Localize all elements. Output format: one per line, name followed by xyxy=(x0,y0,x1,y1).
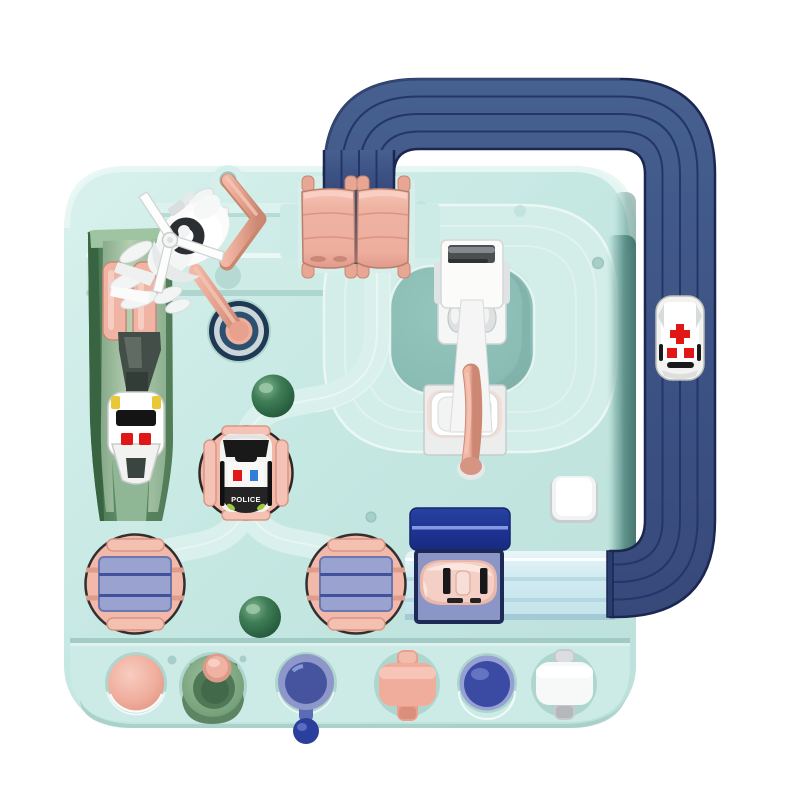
svg-text:POLICE: POLICE xyxy=(231,495,261,504)
